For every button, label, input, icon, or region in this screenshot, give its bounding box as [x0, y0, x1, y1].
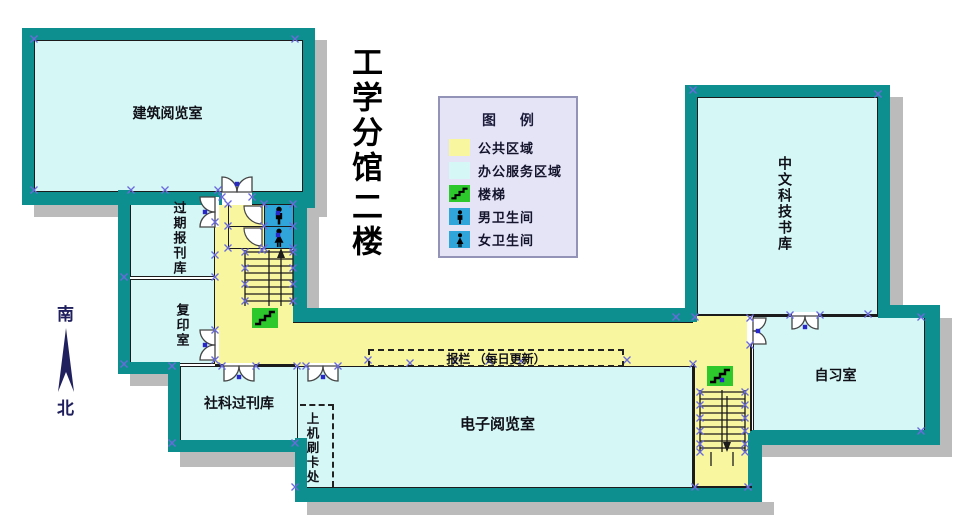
legend-item-public-area: 公共区域 [449, 136, 576, 159]
legend-label: 男卫生间 [478, 207, 534, 226]
wall-segment [750, 430, 940, 445]
room-electronic-reading-label: 电子阅览室 [455, 413, 540, 433]
newspaper-board: 报栏 （每日更新） [368, 349, 624, 367]
compass-north-label: 北 [57, 394, 74, 419]
female-person-icon [265, 227, 293, 248]
wall-segment [685, 85, 697, 318]
wall-segment [295, 488, 762, 502]
partition-line [750, 344, 752, 431]
male-restroom-vestibule [228, 204, 266, 227]
partition-line [693, 486, 752, 488]
stairs-icon [252, 308, 278, 328]
stairs-icon [707, 366, 733, 386]
partition-line [693, 364, 695, 487]
wall-shadow [307, 208, 319, 322]
floor-plan: 报栏 （每日更新） 建筑阅览室 过期报刊库 复印室 社科过刊库 上机刷卡处 电子… [0, 0, 957, 524]
female-restroom-vestibule [228, 226, 266, 249]
room-self-study-label: 自习室 [808, 366, 863, 384]
wall-segment [293, 205, 307, 322]
legend-label: 办公服务区域 [478, 161, 562, 180]
legend-item-office-service: 办公服务区域 [449, 159, 576, 182]
compass-needle [58, 328, 74, 392]
wall-shadow [180, 452, 307, 467]
female-restroom-cell [264, 226, 294, 249]
corridor-right-strip-area [693, 316, 750, 487]
legend-swatch-office-service [449, 162, 470, 179]
wall-segment [168, 440, 307, 452]
wall-segment [878, 85, 890, 318]
legend-female-restroom-icon [449, 231, 470, 248]
compass-south-label: 南 [57, 300, 74, 325]
wall-shadow [315, 40, 327, 217]
wall-segment [685, 85, 890, 97]
partition-line [215, 364, 295, 366]
wall-segment [925, 305, 940, 445]
room-expired-periodicals-label: 过期报刊库 [169, 199, 189, 277]
legend-male-restroom-icon [449, 208, 470, 225]
room-social-science-label: 社科过刊库 [200, 394, 278, 412]
wall-shadow [307, 502, 774, 515]
map-title-line2: 二楼 [342, 190, 387, 260]
wall-segment [118, 190, 130, 368]
legend-label: 女卫生间 [478, 230, 534, 249]
legend: 图 例 公共区域 办公服务区域 楼梯 男卫生间 女卫生间 [438, 96, 578, 258]
legend-label: 公共区域 [478, 138, 534, 157]
wall-segment [22, 28, 315, 40]
partition-line [697, 314, 878, 316]
male-person-icon [265, 205, 293, 226]
room-copy-room-label: 复印室 [172, 296, 192, 354]
legend-item-female-restroom: 女卫生间 [449, 228, 576, 251]
wall-segment [303, 28, 315, 208]
legend-label: 楼梯 [478, 184, 506, 203]
legend-item-stairs: 楼梯 [449, 182, 576, 205]
room-chinese-scitech-label: 中文科技书库 [774, 148, 796, 260]
wall-shadow [890, 97, 903, 330]
wall-shadow [762, 445, 952, 457]
newspaper-board-label: 报栏 （每日更新） [446, 350, 545, 367]
male-restroom-cell [264, 204, 294, 227]
wall-shadow [940, 318, 952, 457]
legend-stairs-icon [449, 185, 470, 202]
wall-segment [293, 308, 697, 322]
partition-line [293, 322, 693, 323]
legend-swatch-public-area [449, 139, 470, 156]
room-card-swipe-label: 上机刷卡处 [303, 408, 321, 488]
wall-segment [22, 28, 34, 205]
legend-item-male-restroom: 男卫生间 [449, 205, 576, 228]
map-title-line1: 工学分馆 [342, 46, 387, 186]
legend-title: 图 例 [440, 110, 576, 130]
room-architecture-reading-label: 建筑阅览室 [110, 103, 225, 123]
